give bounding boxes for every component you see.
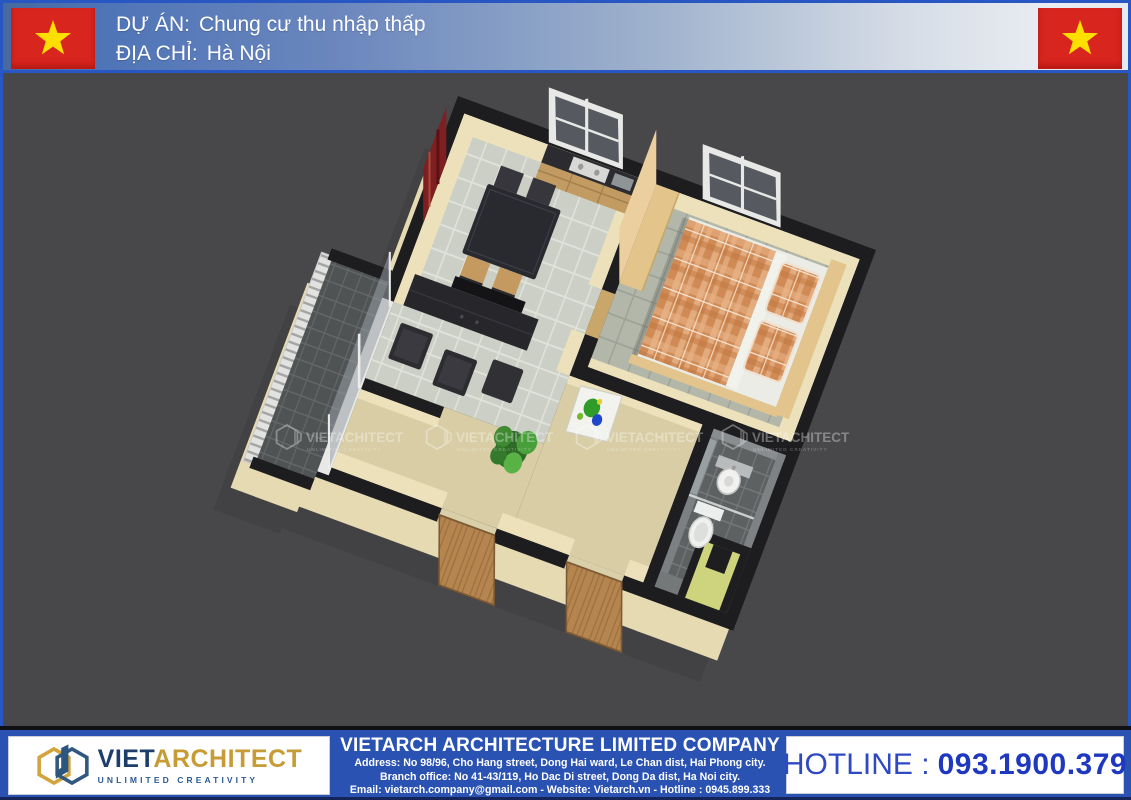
logo-wordmark: VIETARCHITECT UNLIMITED CREATIVITY: [98, 747, 303, 785]
header-banner: DỰ ÁN:Chung cư thu nhập thấp ĐỊA CHỈ:Hà …: [0, 0, 1131, 73]
apartment-3d-plan: [213, 73, 890, 692]
watermark-brand: VIETACHITECT: [752, 430, 850, 445]
render-canvas: VIETACHITECT UNLIMITED CREATIVITY VIETAC…: [0, 73, 1131, 726]
company-info: VIETARCH ARCHITECTURE LIMITED COMPANY Ad…: [336, 733, 784, 799]
project-info: DỰ ÁN:Chung cư thu nhập thấp ĐỊA CHỈ:Hà …: [116, 10, 426, 68]
company-contact: Email: vietarch.company@gmail.com - Webs…: [336, 784, 784, 798]
watermark-tagline: UNLIMITED CREATIVITY: [607, 447, 682, 452]
watermark-brand: VIETACHITECT: [606, 430, 704, 445]
poster: DỰ ÁN:Chung cư thu nhập thấp ĐỊA CHỈ:Hà …: [0, 0, 1131, 800]
project-line: DỰ ÁN:Chung cư thu nhập thấp: [116, 10, 426, 39]
project-value: Chung cư thu nhập thấp: [199, 13, 426, 36]
watermark-brand: VIETACHITECT: [306, 430, 404, 445]
left-border: [0, 73, 3, 726]
hotline-number: 093.1900.379: [938, 748, 1128, 782]
logo-text-viet: VIET: [98, 745, 154, 773]
vietnam-flag-right: [1038, 8, 1122, 69]
company-name: VIETARCH ARCHITECTURE LIMITED COMPANY: [336, 735, 784, 757]
company-branch: Branch office: No 41-43/119, Ho Dac Di s…: [336, 771, 784, 785]
watermark-tagline: UNLIMITED CREATIVITY: [457, 447, 532, 452]
watermark-tagline: UNLIMITED CREATIVITY: [307, 447, 382, 452]
floorplan-render: VIETACHITECT UNLIMITED CREATIVITY VIETAC…: [0, 73, 1131, 726]
company-address: Address: No 98/96, Cho Hang street, Dong…: [336, 757, 784, 771]
watermark-brand: VIETACHITECT: [456, 430, 554, 445]
address-label: ĐỊA CHỈ:: [116, 42, 198, 65]
address-value: Hà Nội: [207, 42, 271, 65]
logo-tagline: UNLIMITED CREATIVITY: [98, 776, 303, 785]
footer-banner: VIETARCHITECT UNLIMITED CREATIVITY VIETA…: [0, 726, 1131, 800]
star-icon: [11, 8, 95, 69]
vietnam-flag-left: [11, 8, 95, 69]
hotline-box: HOTLINE : 093.1900.379: [786, 736, 1124, 794]
hotline-label: HOTLINE :: [783, 748, 930, 782]
star-icon: [1038, 8, 1122, 69]
logo-text-architect: ARCHITECT: [153, 745, 302, 773]
vietarchitect-logo-icon: [36, 739, 90, 793]
project-label: DỰ ÁN:: [116, 13, 190, 36]
watermark-tagline: UNLIMITED CREATIVITY: [753, 447, 828, 452]
address-line: ĐỊA CHỈ:Hà Nội: [116, 39, 426, 68]
company-logo: VIETARCHITECT UNLIMITED CREATIVITY: [8, 736, 330, 795]
